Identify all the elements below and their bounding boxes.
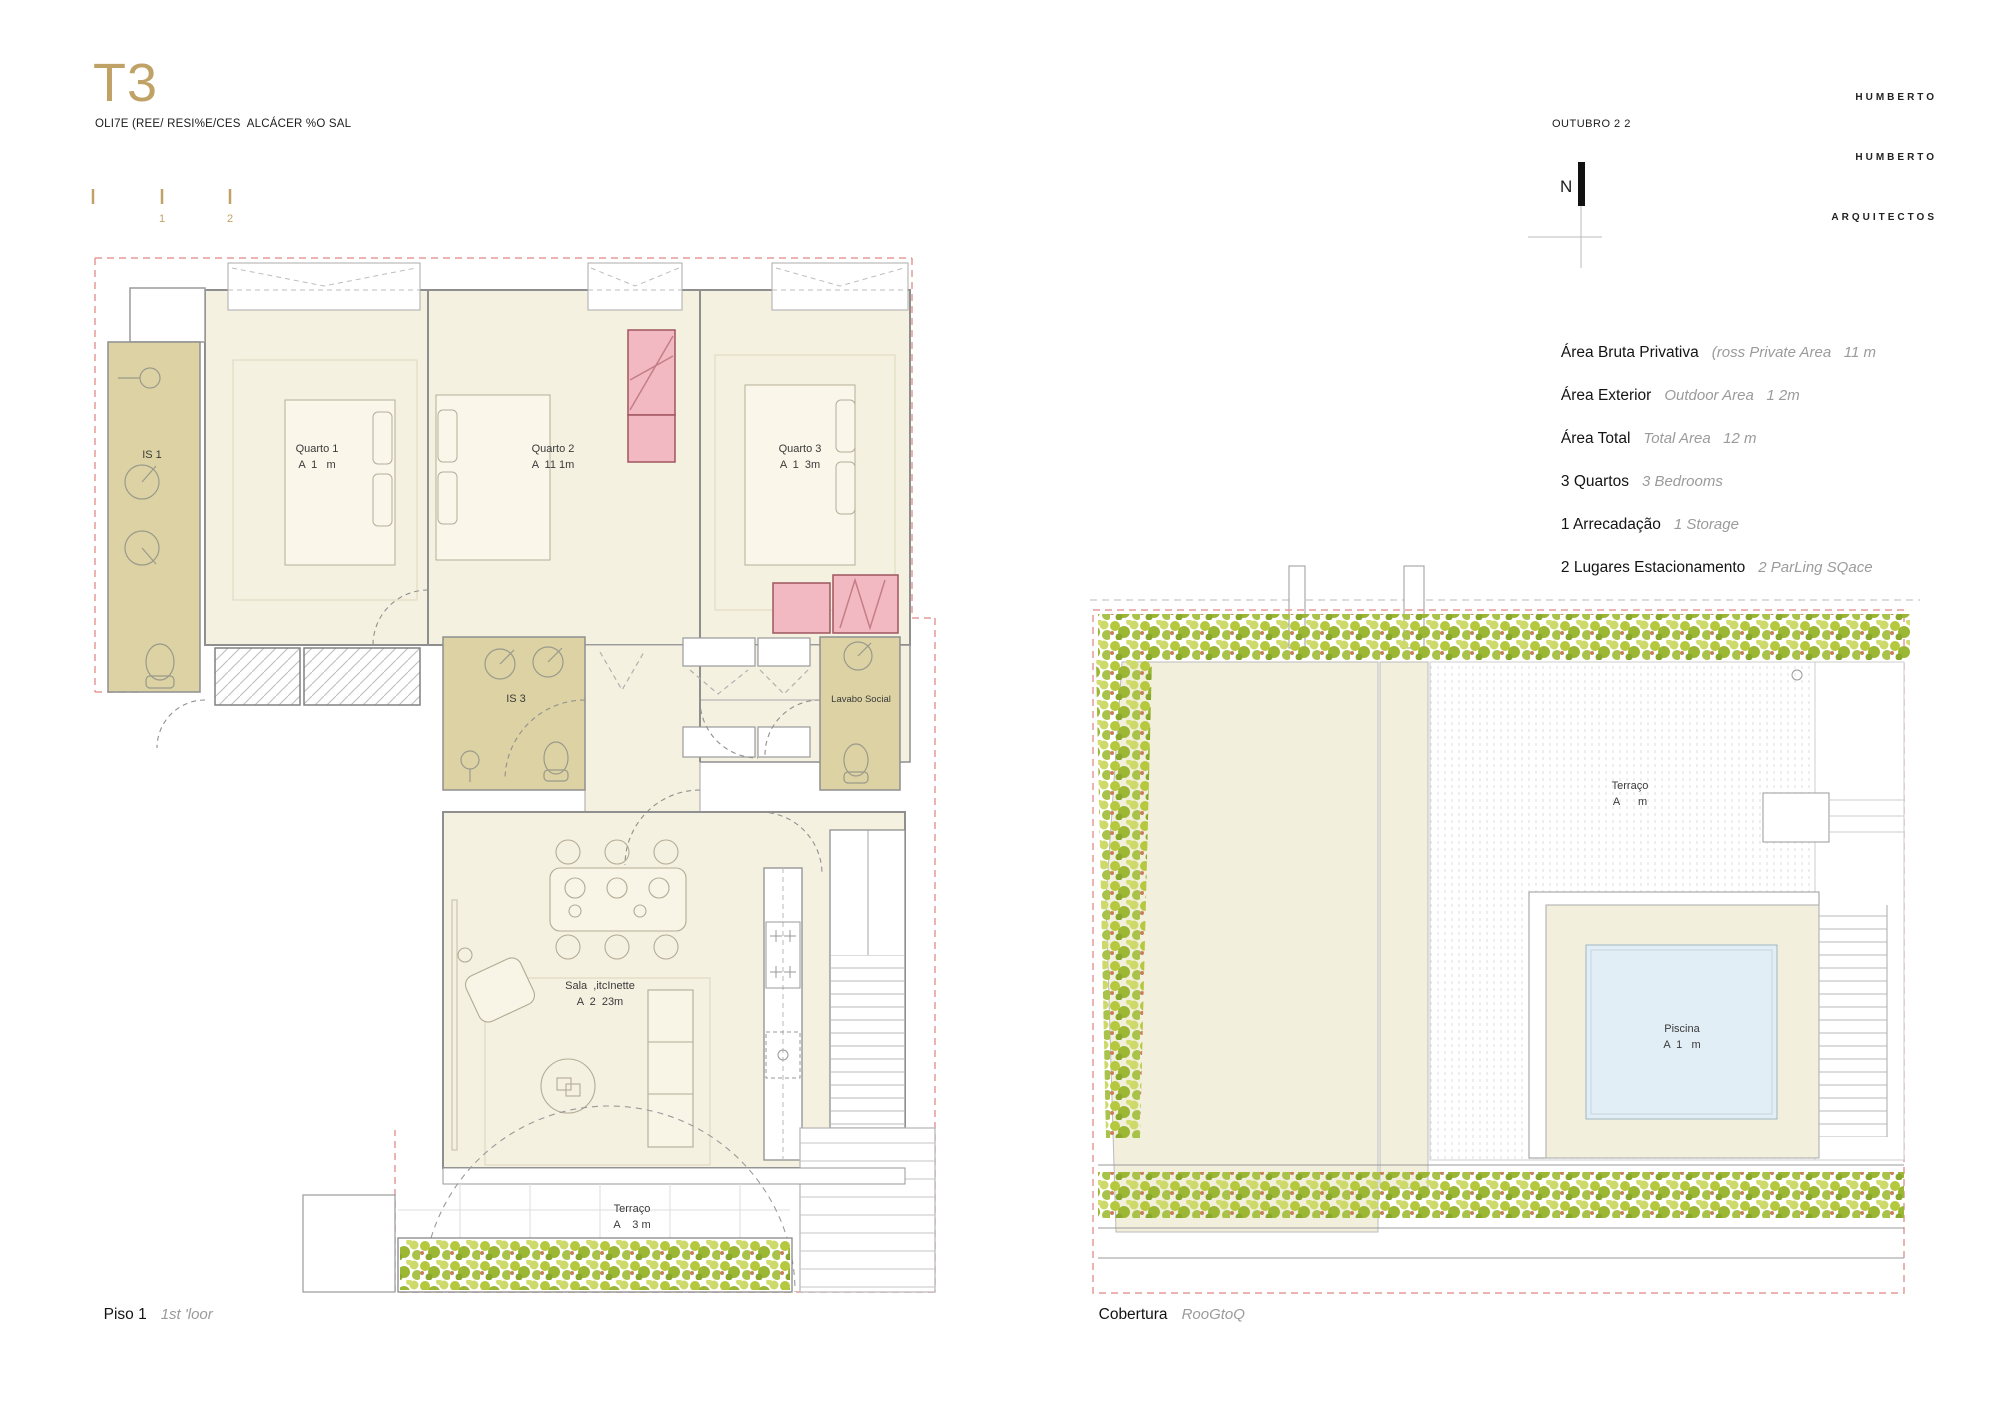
firm-line: HUMBERTO [1831, 88, 1937, 108]
spec-label: Área Exterior [1561, 387, 1651, 404]
spec-note: Total Area 12 m [1643, 430, 1756, 447]
plans-drawing: IS 1 Quarto 1 A 1 m Quarto 2 A 11 1m Qua… [0, 0, 2000, 1414]
skylight [1763, 793, 1829, 842]
floor-plan-caption: Piso 11st 'loor [95, 1288, 213, 1324]
svg-text:N: N [1560, 177, 1572, 196]
floor-plan-piso1: IS 1 Quarto 1 A 1 m Quarto 2 A 11 1m Qua… [95, 258, 935, 1292]
svg-text:A 3 m: A 3 m [613, 1219, 650, 1231]
scale-bar: 1 2 [93, 189, 233, 225]
svg-text:A 11 1m: A 11 1m [532, 459, 575, 471]
spec-row: Área Bruta Privativa(ross Private Area 1… [1552, 326, 1876, 362]
label-is3: IS 3 [506, 693, 526, 705]
spec-row: Área TotalTotal Area 12 m [1552, 412, 1757, 448]
spec-label: 3 Quartos [1561, 473, 1629, 490]
spec-label: 1 Arrecadação [1561, 516, 1661, 533]
label-quarto2: Quarto 2 [532, 443, 575, 455]
spec-note: Outdoor Area 1 2m [1664, 387, 1799, 404]
label-is1: IS 1 [142, 449, 162, 461]
spec-row: 3 Quartos3 Bedrooms [1552, 455, 1723, 491]
label-terraco: Terraço [614, 1203, 651, 1215]
svg-text:A 1 3m: A 1 3m [780, 459, 820, 471]
label-sala: Sala ,itcInette [565, 980, 635, 992]
spec-note: 1 Storage [1674, 516, 1739, 533]
label-roof-terraco: Terraço [1612, 780, 1649, 792]
page-title: T3 [93, 52, 158, 114]
pool-steps [1819, 905, 1887, 1137]
room-lavabo [820, 637, 900, 790]
spec-label: Área Total [1561, 430, 1631, 447]
svg-text:A m: A m [1613, 796, 1647, 808]
firm-line: ARQUITECTOS [1831, 208, 1937, 228]
label-quarto3: Quarto 3 [779, 443, 822, 455]
spec-label: 2 Lugares Estacionamento [1561, 559, 1745, 576]
room-is1 [108, 342, 200, 692]
spec-label: Área Bruta Privativa [1561, 344, 1699, 361]
roof-strip [1380, 662, 1428, 1188]
label-piscina: Piscina [1664, 1023, 1700, 1035]
firm-line: HUMBERTO [1831, 148, 1937, 168]
roof-plan-cobertura: Terraço A m Piscina A 1 m [1090, 566, 1920, 1293]
svg-text:A 2 23m: A 2 23m [577, 996, 623, 1008]
north-arrow: N [1528, 162, 1602, 268]
hedge-top [1098, 614, 1910, 660]
spec-note: 3 Bedrooms [1642, 473, 1723, 490]
svg-text:A 1 m: A 1 m [1663, 1039, 1700, 1051]
spec-row: 1 Arrecadação1 Storage [1552, 498, 1739, 534]
architectural-sheet: IS 1 Quarto 1 A 1 m Quarto 2 A 11 1m Qua… [0, 0, 2000, 1414]
window-boxes [215, 648, 420, 705]
label-quarto1: Quarto 1 [296, 443, 339, 455]
spec-note: (ross Private Area 11 m [1712, 344, 1876, 361]
svg-text:1: 1 [159, 213, 165, 225]
kitchen [764, 868, 802, 1160]
svg-text:A 1 m: A 1 m [298, 459, 335, 471]
project-subtitle: OLI7E (REE/ RESI%E/CES ALCÁCER %O SAL [95, 118, 351, 130]
spec-row: Área ExteriorOutdoor Area 1 2m [1552, 369, 1800, 405]
hedge-bottom [1098, 1172, 1904, 1218]
svg-text:2: 2 [227, 213, 233, 225]
roof-plan-caption: CoberturaRooGtoQ [1090, 1288, 1245, 1324]
label-lavabo: Lavabo Social [831, 694, 891, 705]
spec-row: 2 Lugares Estacionamento2 ParLing SQace [1552, 541, 1873, 577]
firm-block: HUMBERTO HUMBERTO ARQUITECTOS [1831, 48, 1937, 248]
spec-note: 2 ParLing SQace [1758, 559, 1872, 576]
date-label: OUTUBRO 2 2 [1552, 118, 1631, 130]
